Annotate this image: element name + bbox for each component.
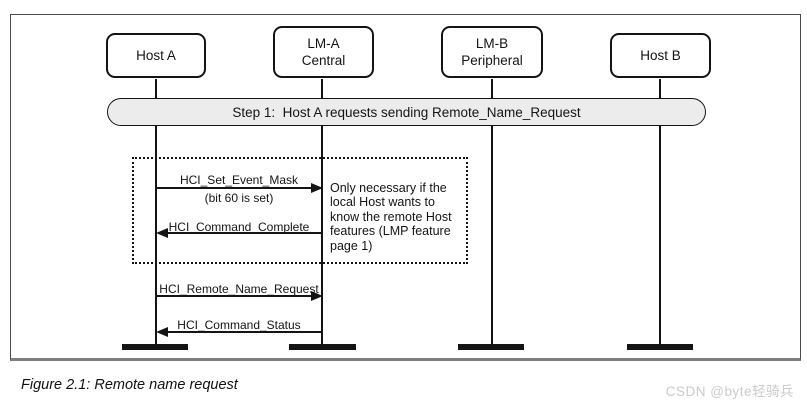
arrowhead-right-icon [311, 291, 323, 301]
message-arrow-line [167, 331, 322, 333]
actor-label: Host A [136, 47, 176, 64]
actor-label: Peripheral [461, 52, 523, 69]
message-label: HCI_Command_Status [156, 318, 322, 332]
actor-box-host-a: Host A [106, 33, 206, 78]
note-line: Only necessary if the [330, 181, 472, 195]
actor-label: Central [302, 52, 346, 69]
message-sublabel: (bit 60 is set) [156, 191, 322, 205]
step-banner: Step 1: Host A requests sending Remote_N… [107, 98, 706, 126]
message-label: HCI_Set_Event_Mask [156, 173, 322, 187]
actor-label: LM-B [476, 35, 508, 52]
actor-box-host-b: Host B [610, 33, 711, 78]
message-arrow-line [157, 187, 313, 189]
lifeline-end-bar [627, 344, 693, 350]
message-label: HCI_Remote_Name_Request [156, 282, 322, 296]
actor-label: Host B [640, 47, 681, 64]
actor-box-lm-b-peripheral: LM-B Peripheral [441, 26, 543, 78]
step-banner-label: Step 1: Host A requests sending Remote_N… [232, 105, 580, 120]
message-arrow-line [157, 295, 313, 297]
lifeline-end-bar [289, 344, 356, 350]
lifeline-end-bar [458, 344, 524, 350]
arrowhead-left-icon [156, 327, 168, 337]
note-text: Only necessary if the local Host wants t… [330, 181, 472, 253]
actor-box-lm-a-central: LM-A Central [273, 26, 374, 78]
note-line: features (LMP feature [330, 224, 472, 238]
note-line: know the remote Host [330, 210, 472, 224]
watermark-text: CSDN @byte轻骑兵 [666, 380, 794, 400]
message-arrow-line [167, 232, 322, 234]
figure-caption: Figure 2.1: Remote name request [21, 377, 238, 393]
note-line: page 1) [330, 239, 472, 253]
figure-canvas: Host A LM-A Central LM-B Peripheral Host… [0, 0, 807, 404]
actor-label: LM-A [307, 35, 339, 52]
lifeline-end-bar [122, 344, 188, 350]
note-line: local Host wants to [330, 195, 472, 209]
arrowhead-left-icon [156, 228, 168, 238]
